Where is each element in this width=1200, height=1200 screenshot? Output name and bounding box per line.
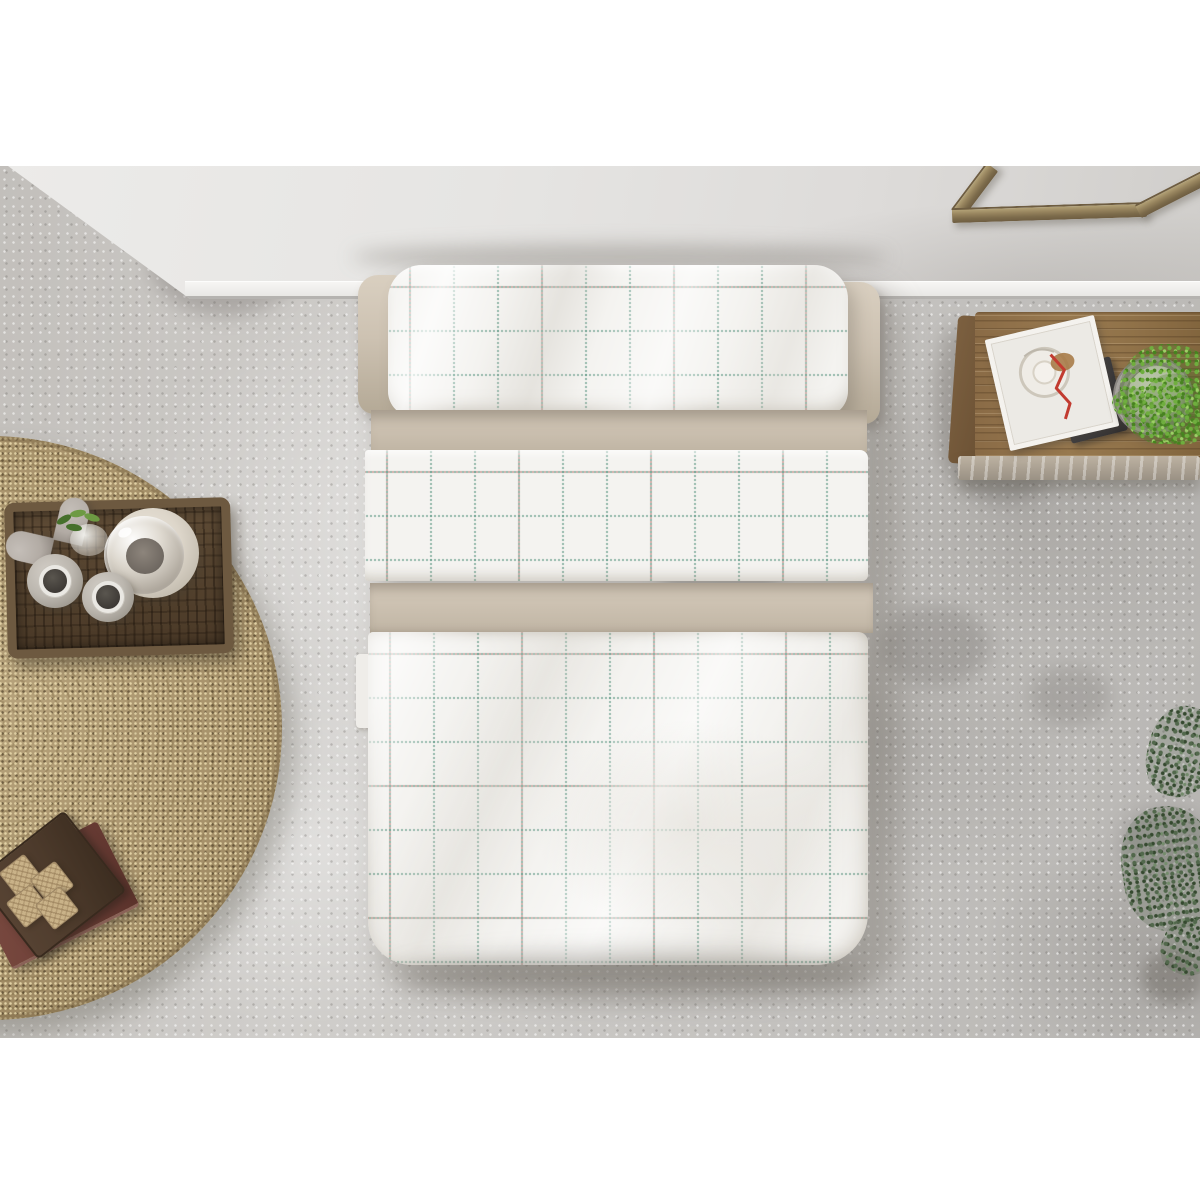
vase — [82, 572, 134, 622]
letterbox-bottom — [0, 1038, 1200, 1200]
fabric-sheen — [388, 265, 848, 417]
magazine-cover-art — [991, 323, 1102, 435]
bedroom-scene — [0, 166, 1200, 1038]
glass-highlight — [117, 525, 133, 539]
vase-opening — [43, 569, 67, 593]
pillow-bolster — [388, 265, 848, 417]
bed-foot-shadow — [400, 954, 870, 1000]
bench-front-edge — [958, 456, 1200, 480]
vase-opening — [96, 585, 120, 609]
glass-dome-core — [126, 538, 164, 574]
plant-sprig — [83, 512, 100, 524]
product-photo-canvas — [0, 0, 1200, 1200]
taupe-wide-band — [370, 583, 873, 633]
vase — [27, 554, 83, 608]
duvet — [368, 632, 868, 965]
fabric-sheen — [368, 632, 868, 965]
floor-stain — [1030, 666, 1110, 726]
taupe-turn-down-band — [371, 410, 867, 452]
sheet-fold-panel — [365, 450, 868, 581]
letterbox-top — [0, 0, 1200, 166]
